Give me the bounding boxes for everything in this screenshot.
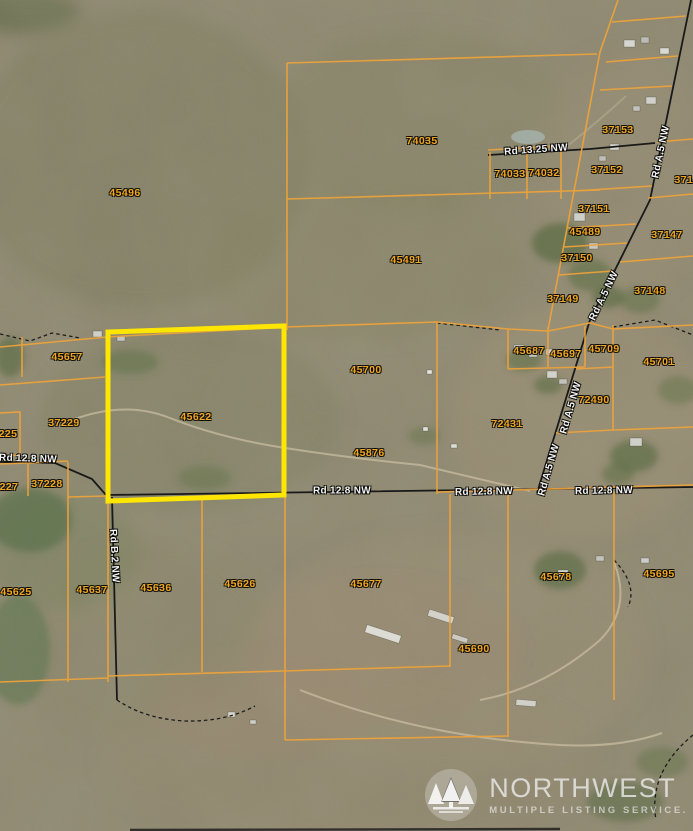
parcel-label-37147: 37147 <box>651 229 682 241</box>
parcel-label-45687: 45687 <box>513 345 544 357</box>
road-label-rd-a-5-nw: Rd A.5 NW <box>587 270 620 323</box>
road-label-rd-a-5-nw: Rd A.5 NW <box>536 443 561 497</box>
parcel-label-37229: 37229 <box>48 417 79 429</box>
parcel-label-45489: 45489 <box>569 226 600 238</box>
aerial-parcel-map: 4549674035740337403237153371523714371514… <box>0 0 693 831</box>
parcel-label-45657: 45657 <box>51 351 82 363</box>
parcel-label-45677: 45677 <box>350 578 381 590</box>
parcel-label-45700: 45700 <box>350 364 381 376</box>
road-label-rd-b-2-nw: Rd B.2 NW <box>107 529 121 583</box>
parcel-label-72490: 72490 <box>578 394 609 406</box>
map-labels: 4549674035740337403237153371523714371514… <box>0 0 693 831</box>
parcel-label-45625: 45625 <box>0 586 31 598</box>
parcel-label-225: 225 <box>0 428 17 440</box>
road-label-rd-13-25-nw: Rd 13.25 NW <box>504 142 568 157</box>
parcel-label-45622: 45622 <box>180 411 211 423</box>
parcel-label-37150: 37150 <box>561 252 592 264</box>
parcel-label-37151: 37151 <box>578 203 609 215</box>
road-label-rd-12-8-nw: Rd 12.8 NW <box>455 486 513 498</box>
parcel-label-37153: 37153 <box>602 124 633 136</box>
parcel-label-45709: 45709 <box>588 343 619 355</box>
parcel-label-45636: 45636 <box>140 582 171 594</box>
parcel-label-45876: 45876 <box>353 447 384 459</box>
parcel-label-37152: 37152 <box>591 164 622 176</box>
parcel-label-74035: 74035 <box>406 135 437 147</box>
parcel-label-74032: 74032 <box>528 167 559 179</box>
parcel-label-45637: 45637 <box>76 584 107 596</box>
parcel-label-45701: 45701 <box>643 356 674 368</box>
road-label-rd-12-8-nw: Rd 12.8 NW <box>313 486 371 497</box>
parcel-label-3714: 3714 <box>675 174 693 186</box>
parcel-label-37149: 37149 <box>547 293 578 305</box>
parcel-label-227: 227 <box>0 481 18 493</box>
parcel-label-37148: 37148 <box>634 285 665 297</box>
road-label-rd-a-5-nw: Rd A.5 NW <box>650 125 672 180</box>
parcel-label-45491: 45491 <box>390 254 421 266</box>
road-label-rd-12-8-nw: Rd 12.8 NW <box>575 485 633 497</box>
parcel-label-74033: 74033 <box>494 168 525 180</box>
road-label-rd-a-5-nw: Rd A.5 NW <box>558 381 583 435</box>
parcel-label-45678: 45678 <box>540 571 571 583</box>
road-label-rd-12-8-nw: Rd 12.8 NW <box>0 452 57 465</box>
parcel-label-45697: 45697 <box>550 348 581 360</box>
parcel-label-45496: 45496 <box>109 187 140 199</box>
parcel-label-45690: 45690 <box>458 643 489 655</box>
parcel-label-45695: 45695 <box>643 568 674 580</box>
parcel-label-37228: 37228 <box>31 478 62 490</box>
parcel-label-45626: 45626 <box>224 578 255 590</box>
parcel-label-72431: 72431 <box>491 418 522 430</box>
